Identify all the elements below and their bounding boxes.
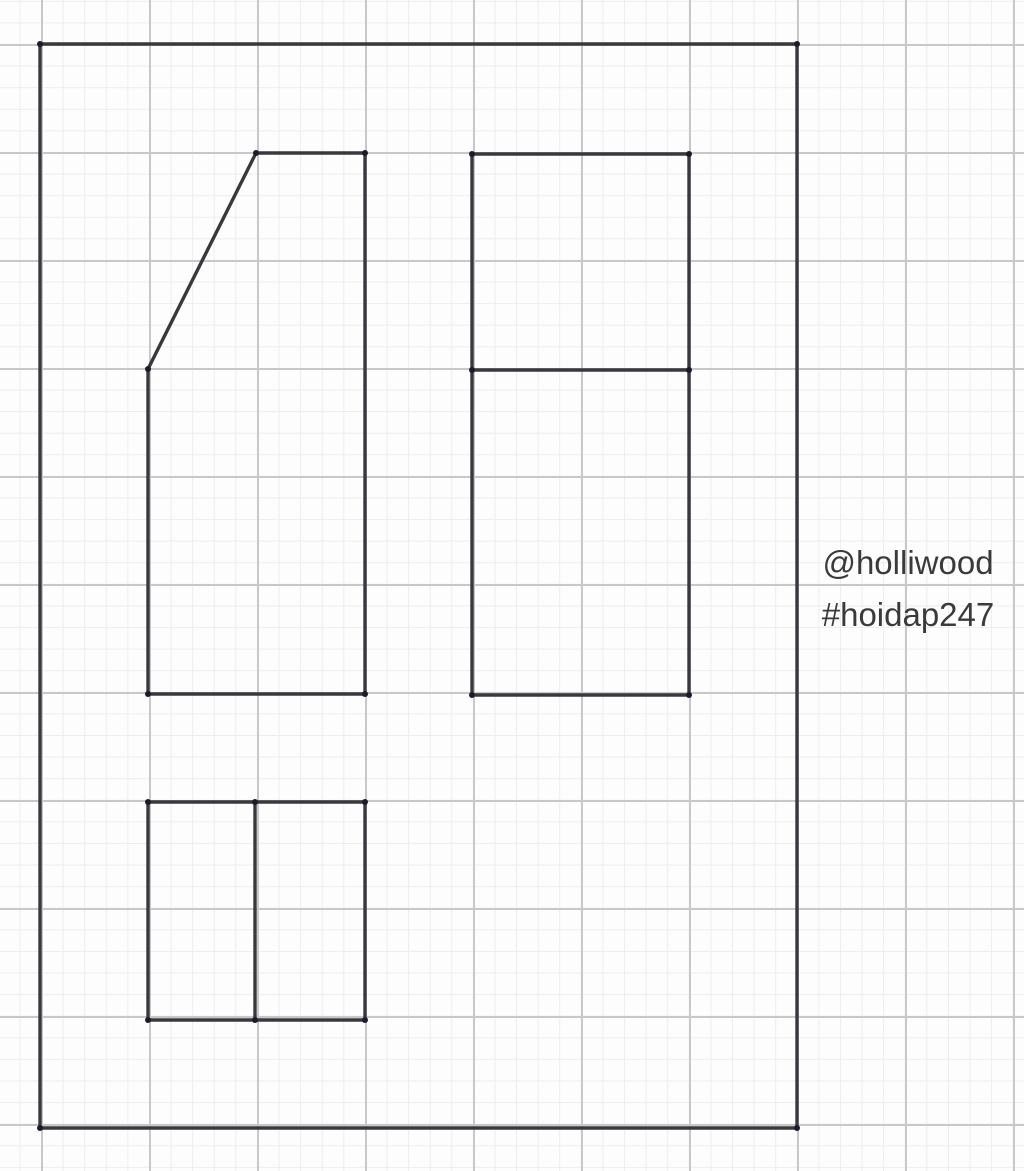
vertex-point	[469, 151, 475, 157]
watermark-username: @holliwood	[806, 537, 1010, 589]
vertex-point	[469, 692, 475, 698]
vertex-point	[37, 41, 43, 47]
watermark-hashtag: #hoidap247	[806, 589, 1010, 641]
vertex-point	[145, 691, 151, 697]
graph-paper-canvas: @holliwood #hoidap247	[0, 0, 1024, 1171]
outer-frame	[40, 44, 797, 1128]
vertex-point	[37, 1125, 43, 1131]
vertex-point	[253, 150, 259, 156]
vertex-point	[362, 1017, 368, 1023]
front-view-pentagon	[148, 153, 365, 694]
side-view-rectangle	[472, 154, 689, 695]
vertex-point	[794, 1125, 800, 1131]
vertex-point	[686, 692, 692, 698]
vertex-point	[145, 1017, 151, 1023]
vertex-point	[686, 151, 692, 157]
vertex-point	[686, 367, 692, 373]
vertex-point	[252, 799, 258, 805]
vertex-point	[145, 799, 151, 805]
vertex-point	[794, 41, 800, 47]
vertex-point	[145, 366, 151, 372]
vertex-point	[362, 799, 368, 805]
vertex-point	[252, 1017, 258, 1023]
vertex-point	[469, 367, 475, 373]
vertex-point	[362, 691, 368, 697]
vertex-point	[362, 150, 368, 156]
watermark: @holliwood #hoidap247	[806, 537, 1010, 641]
